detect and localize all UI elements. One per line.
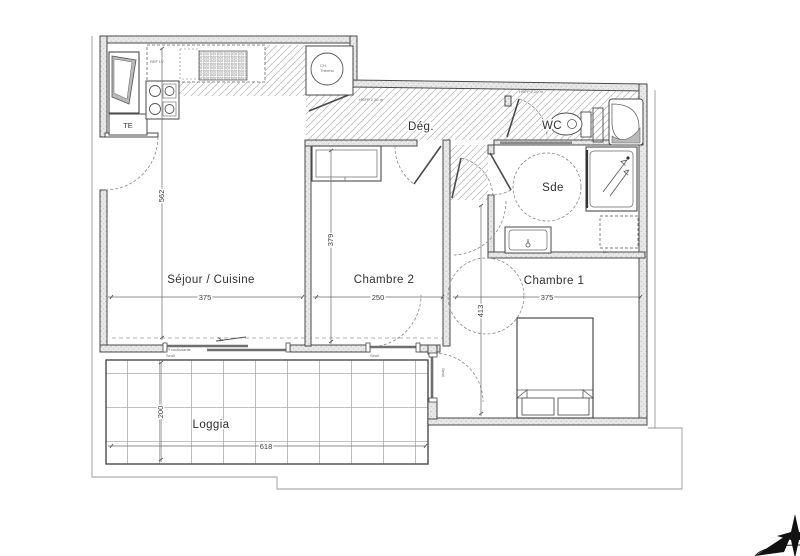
washbasin-sde-icon [505,227,551,253]
window-chambre1 [429,353,437,402]
room-label-sejour: Séjour / Cuisine [167,274,255,286]
counter-appliance-zone: REF LV [147,45,265,82]
room-label-chambre1: Chambre 1 [524,275,585,287]
closet-icon [312,146,381,181]
note-ceiling-wc: HSFP 2,20 m [519,89,544,94]
dim-loggia-width: 618 [260,442,273,451]
dim-chambre2-width: 250 [372,293,385,302]
floor-plan-drawing: TE REF LV CH Thermo [0,0,800,556]
loggia-area [106,338,448,464]
note-sill-chambre1: Seuil [441,368,446,377]
washer-note: LL [603,249,608,254]
kitchen-unit-icon [109,52,139,113]
sink-icon [199,51,247,80]
shower-icon [586,147,637,211]
note-sill-chambre2: Seuil [370,353,379,358]
room-label-chambre2: Chambre 2 [354,274,415,286]
dim-chambre1-height: 413 [476,305,485,318]
stove-icon [146,81,179,119]
water-heater-icon: CH Thermo [306,46,353,95]
room-label-sde: Sde [542,182,564,194]
dim-sejour-width: 375 [199,293,212,302]
window-chambre2 [366,343,420,352]
room-label-wc: WC [542,120,562,132]
electrical-panel-label: TE [123,121,133,130]
turning-circle-chambre1 [448,258,524,334]
electrical-panel: TE [109,114,147,135]
dim-loggia-height: 200 [156,406,165,419]
dim-sejour-height: 562 [157,190,166,203]
bed-icon [517,318,593,418]
note-bay: Pf coulissante [166,347,192,352]
washer-zone-icon: LL [600,216,638,254]
radiator-icon [593,108,603,142]
washbasin-wc-icon [609,99,643,145]
floor-plan: TE REF LV CH Thermo [0,0,800,556]
room-label-loggia: Loggia [193,419,230,431]
room-label-deg: Dég. [408,121,434,133]
water-heater-label2: Thermo [320,68,335,73]
compass-icon [755,514,800,556]
sliding-panel [500,142,572,145]
note-ceiling-deg: HSFP 2,20 m [359,97,384,102]
dim-chambre1-width: 375 [541,293,554,302]
note-sill-sejour: Seuil [166,353,175,358]
dim-chambre2-height: 379 [326,234,335,247]
